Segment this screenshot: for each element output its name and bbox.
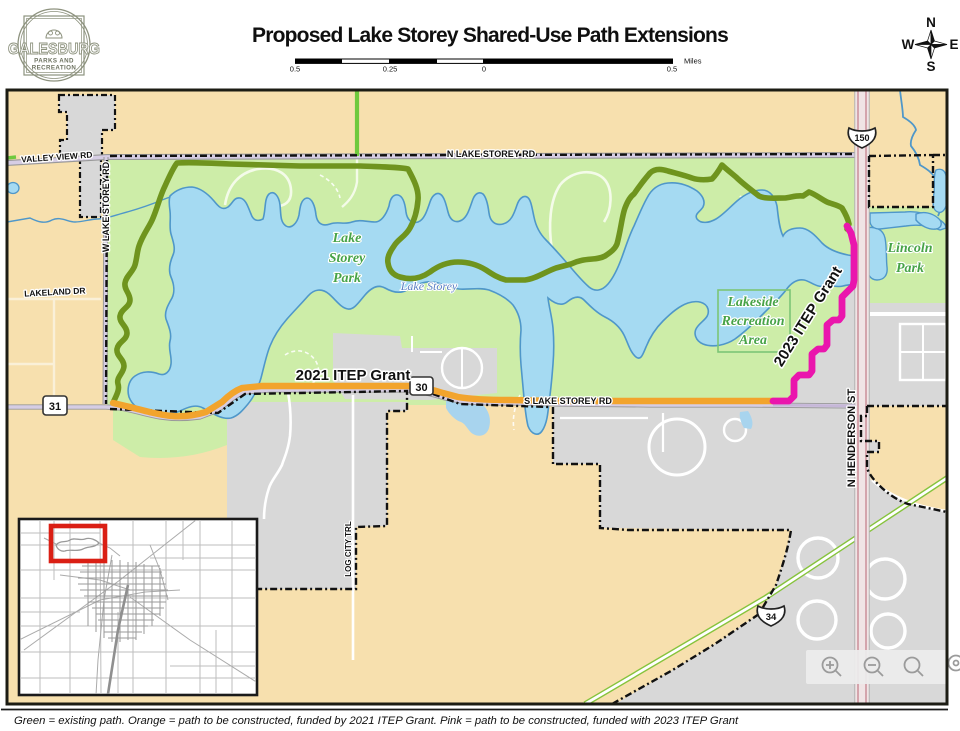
svg-text:2021 ITEP Grant: 2021 ITEP Grant xyxy=(296,367,411,384)
svg-text:N HENDERSON ST: N HENDERSON ST xyxy=(846,389,858,488)
svg-text:Proposed Lake Storey Shared-Us: Proposed Lake Storey Shared-Use Path Ext… xyxy=(252,24,728,47)
svg-text:Green = existing path. Orange: Green = existing path. Orange = path to … xyxy=(14,715,739,727)
svg-text:E: E xyxy=(949,37,958,52)
svg-text:W LAKE STOREY RD: W LAKE STOREY RD xyxy=(101,161,111,252)
svg-text:Park: Park xyxy=(333,271,361,286)
svg-text:LOG CITY TRL: LOG CITY TRL xyxy=(344,521,353,577)
svg-text:0.5: 0.5 xyxy=(667,65,677,74)
svg-text:GALESBURG: GALESBURG xyxy=(8,41,100,58)
svg-text:34: 34 xyxy=(766,612,777,623)
svg-text:Lake: Lake xyxy=(332,231,362,246)
svg-text:30: 30 xyxy=(415,382,427,394)
svg-text:PARKS AND: PARKS AND xyxy=(34,58,74,65)
svg-text:W: W xyxy=(902,37,915,52)
svg-text:S: S xyxy=(926,59,935,74)
svg-text:S LAKE STOREY RD: S LAKE STOREY RD xyxy=(524,396,612,406)
svg-text:Lakeside: Lakeside xyxy=(726,295,778,310)
svg-text:150: 150 xyxy=(854,133,869,143)
svg-text:Lincoln: Lincoln xyxy=(886,241,932,256)
svg-text:31: 31 xyxy=(49,401,61,413)
svg-text:0: 0 xyxy=(482,65,486,74)
svg-text:RECREATION: RECREATION xyxy=(32,65,77,72)
svg-text:N LAKE STOREY RD: N LAKE STOREY RD xyxy=(447,149,536,159)
svg-text:Park: Park xyxy=(896,261,924,276)
svg-text:Area: Area xyxy=(738,333,767,348)
svg-text:Storey: Storey xyxy=(329,251,366,266)
svg-text:N: N xyxy=(926,15,936,30)
svg-text:0.25: 0.25 xyxy=(383,65,398,74)
svg-text:Miles: Miles xyxy=(684,57,702,66)
svg-text:0.5: 0.5 xyxy=(290,65,300,74)
svg-text:Recreation: Recreation xyxy=(721,314,785,329)
svg-text:Lake Storey: Lake Storey xyxy=(400,279,458,293)
